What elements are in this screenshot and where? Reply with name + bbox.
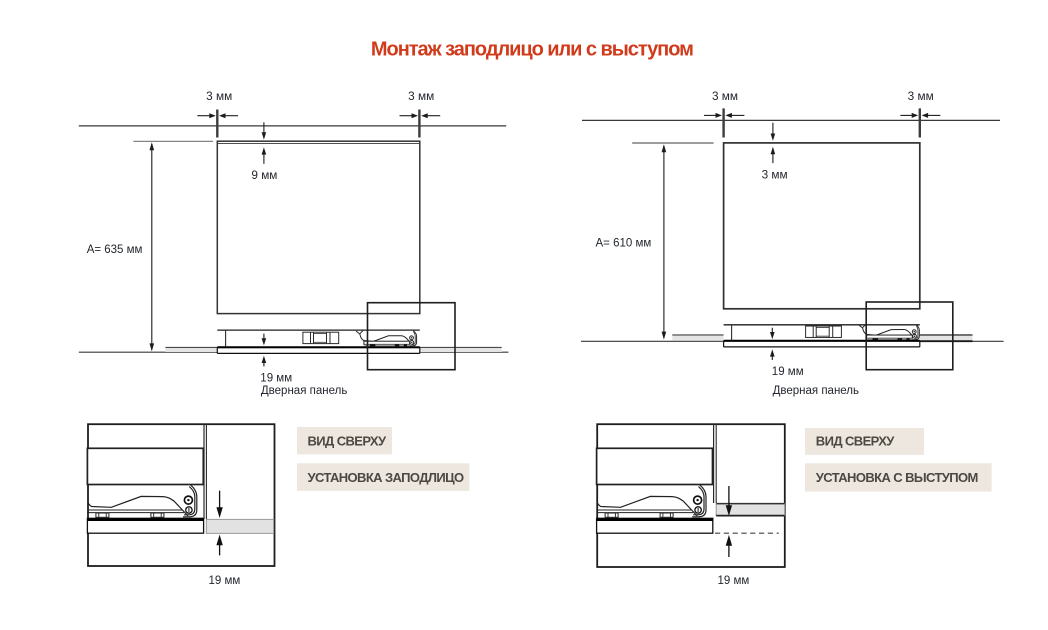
svg-text:19 мм: 19 мм: [208, 575, 240, 587]
svg-text:А= 610 мм: А= 610 мм: [596, 238, 652, 250]
svg-text:3 мм: 3 мм: [908, 89, 934, 103]
svg-text:19 мм: 19 мм: [717, 575, 749, 587]
svg-text:ВИД СВЕРХУ: ВИД СВЕРХУ: [816, 434, 895, 449]
svg-text:Монтаж заподлицо или с выступо: Монтаж заподлицо или с выступом: [371, 39, 693, 61]
svg-text:Дверная панель: Дверная панель: [261, 385, 347, 397]
svg-text:19 мм: 19 мм: [772, 366, 804, 378]
svg-text:3 мм: 3 мм: [206, 89, 232, 103]
svg-text:19 мм: 19 мм: [260, 373, 292, 385]
svg-text:УСТАНОВКА С ВЫСТУПОМ: УСТАНОВКА С ВЫСТУПОМ: [816, 470, 978, 485]
svg-text:3 мм: 3 мм: [408, 89, 434, 103]
svg-text:3 мм: 3 мм: [712, 89, 738, 103]
svg-text:А= 635 мм: А= 635 мм: [87, 244, 143, 256]
svg-text:Дверная панель: Дверная панель: [773, 385, 859, 397]
svg-text:ВИД СВЕРХУ: ВИД СВЕРХУ: [308, 433, 387, 448]
svg-text:3 мм: 3 мм: [762, 167, 788, 181]
svg-text:9 мм: 9 мм: [251, 168, 277, 182]
svg-text:УСТАНОВКА ЗАПОДЛИЦО: УСТАНОВКА ЗАПОДЛИЦО: [308, 470, 465, 485]
